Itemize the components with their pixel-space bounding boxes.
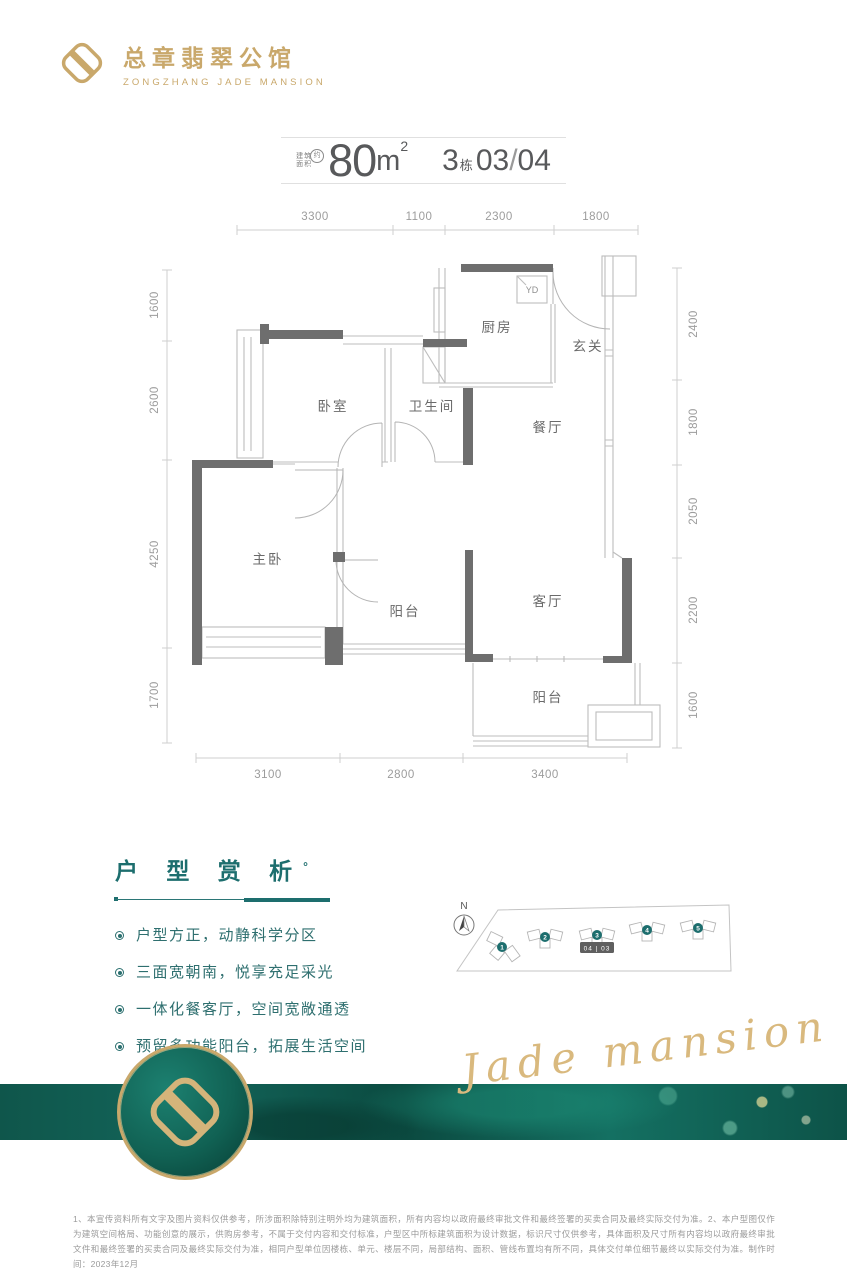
dim-right-5: 1600 <box>688 691 700 719</box>
dim-top-3: 2300 <box>485 211 513 223</box>
analysis-bullet-list: 户型方正，动静科学分区 三面宽朝南，悦享充足采光 一体化餐客厅，空间宽敞通透 预… <box>115 926 445 1056</box>
duct-label: YD <box>526 285 539 295</box>
walls-thin <box>202 256 660 747</box>
brand-header: 总章翡翠公馆 ZONGZHANG JADE MANSION <box>55 36 326 90</box>
highlighted-unit-badge: 04 | 03 <box>580 942 614 953</box>
room-bedroom: 卧室 <box>318 398 349 414</box>
room-kitchen: 厨房 <box>482 320 513 335</box>
script-signature: Jade mansion <box>459 1002 822 1095</box>
room-living: 客厅 <box>533 593 564 609</box>
room-dining: 餐厅 <box>533 420 564 435</box>
brand-text: 总章翡翠公馆 ZONGZHANG JADE MANSION <box>123 39 326 88</box>
room-master: 主卧 <box>253 552 284 567</box>
room-bathroom: 卫生间 <box>409 399 456 414</box>
area-sup: 2 <box>400 138 408 154</box>
bullet-text: 一体化餐客厅，空间宽敞通透 <box>136 1000 351 1019</box>
dim-left-1: 1600 <box>149 291 161 319</box>
room-foyer: 玄关 <box>573 338 604 354</box>
unit-right: 04 <box>518 144 551 178</box>
bullet-text: 户型方正，动静科学分区 <box>136 926 318 945</box>
disclaimer-text: 1、本宣传资料所有文字及图片资料仅供参考，所涉面积除特别注明外均为建筑面积，所有… <box>73 1212 775 1272</box>
bullet-dot-icon <box>115 1005 124 1014</box>
medallion-logo-icon <box>139 1066 231 1158</box>
building-number: 2 <box>543 935 547 942</box>
building-number: 1 <box>500 945 504 952</box>
bullet-dot-icon <box>115 931 124 940</box>
dim-right-4: 2200 <box>688 596 700 624</box>
bullet-text: 三面宽朝南，悦享充足采光 <box>136 963 334 982</box>
building-number: 5 <box>696 926 700 933</box>
area-unit: m <box>376 141 400 181</box>
dim-top-1: 3300 <box>301 211 329 223</box>
dim-top-2: 1100 <box>406 211 433 223</box>
analysis-bullet: 三面宽朝南，悦享充足采光 <box>115 963 445 982</box>
analysis-bullet: 一体化餐客厅，空间宽敞通透 <box>115 1000 445 1019</box>
approx-mark: 约 <box>310 149 324 163</box>
unit-title-block: 建筑 面积 约 80 m 2 3 栋 03 / 04 <box>281 137 566 184</box>
dim-left-4: 1700 <box>149 681 161 709</box>
dim-left-2: 2600 <box>149 386 161 414</box>
area-label-bottom: 面积 <box>296 161 312 169</box>
analysis-degree-mark: ° <box>303 859 308 873</box>
brand-name-cn: 总章翡翠公馆 <box>123 39 326 73</box>
room-balcony-bottom: 阳台 <box>533 690 564 705</box>
dim-right-1: 2400 <box>688 310 700 338</box>
poster-page: 总章翡翠公馆 ZONGZHANG JADE MANSION 建筑 面积 约 80… <box>0 0 847 1280</box>
analysis-bullet: 户型方正，动静科学分区 <box>115 926 445 945</box>
analysis-title-text: 户 型 赏 析 <box>115 858 303 884</box>
building-number: 3 <box>595 933 599 940</box>
room-balcony-mid: 阳台 <box>390 604 421 619</box>
unit-left: 03 <box>476 144 509 178</box>
floorplan: 3300 1100 2300 1800 1600 2600 4250 1700 … <box>140 200 710 800</box>
unit-badge-text: 04 | 03 <box>584 946 611 953</box>
jade-medallion <box>117 1044 253 1180</box>
bullet-dot-icon <box>115 968 124 977</box>
dimension-lines <box>162 225 682 763</box>
bullet-dot-icon <box>115 1042 124 1051</box>
siteplan: N 1 2 3 4 5 04 | 03 <box>440 878 775 1003</box>
analysis-title: 户 型 赏 析° <box>115 852 445 886</box>
area-value: 80 <box>328 141 376 181</box>
block-number: 3 <box>442 144 459 178</box>
unit-slash: / <box>509 144 517 178</box>
analysis-underline <box>115 898 330 902</box>
brand-name-en: ZONGZHANG JADE MANSION <box>123 77 326 88</box>
north-label: N <box>460 901 467 912</box>
dim-bottom-3: 3400 <box>531 769 559 781</box>
dim-right-3: 2050 <box>688 497 700 525</box>
dim-bottom-2: 2800 <box>387 769 415 781</box>
dim-bottom-1: 3100 <box>254 769 282 781</box>
block-suffix: 栋 <box>460 155 473 174</box>
dim-left-3: 4250 <box>149 540 161 568</box>
compass: N <box>454 901 474 935</box>
building-number: 4 <box>645 928 649 935</box>
brand-logo-icon <box>55 36 109 90</box>
dim-top-4: 1800 <box>582 211 610 223</box>
dim-right-2: 1800 <box>688 408 700 436</box>
analysis-section: 户 型 赏 析° 户型方正，动静科学分区 三面宽朝南，悦享充足采光 一体化餐客厅… <box>115 852 445 1074</box>
block-unit-group: 3 栋 03 / 04 <box>442 144 551 178</box>
